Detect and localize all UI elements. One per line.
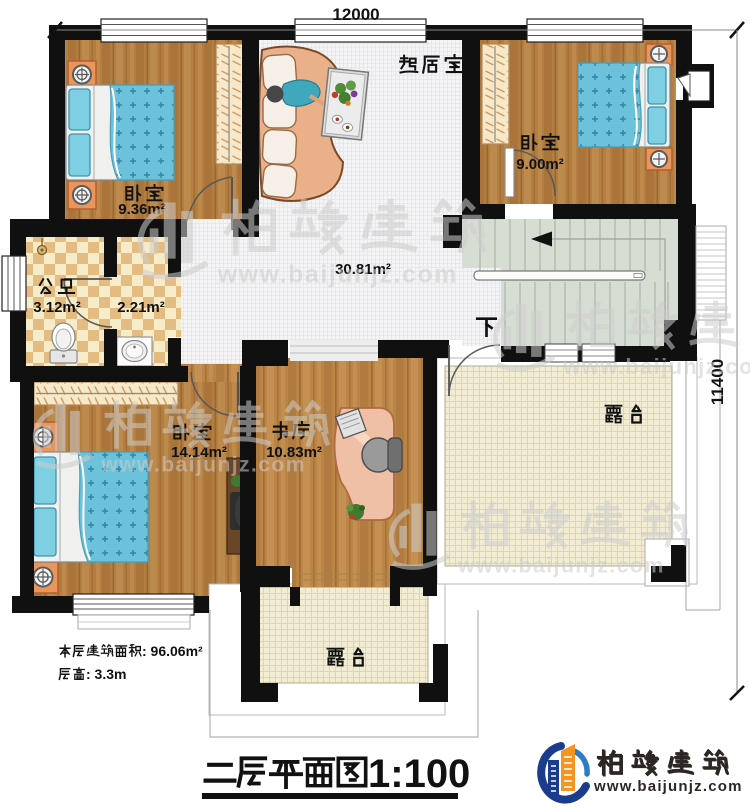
- svg-text:: 3.3m: : 3.3m: [86, 666, 126, 682]
- svg-text:www.baijunjz.com: www.baijunjz.com: [593, 778, 743, 795]
- svg-text:9.00m²: 9.00m²: [516, 156, 564, 173]
- svg-text:3.12m²: 3.12m²: [33, 299, 81, 316]
- svg-text:12000: 12000: [332, 5, 379, 24]
- svg-text:2.21m²: 2.21m²: [117, 299, 165, 316]
- svg-text:: 96.06m²: : 96.06m²: [142, 643, 203, 659]
- svg-text:1:100: 1:100: [368, 752, 470, 796]
